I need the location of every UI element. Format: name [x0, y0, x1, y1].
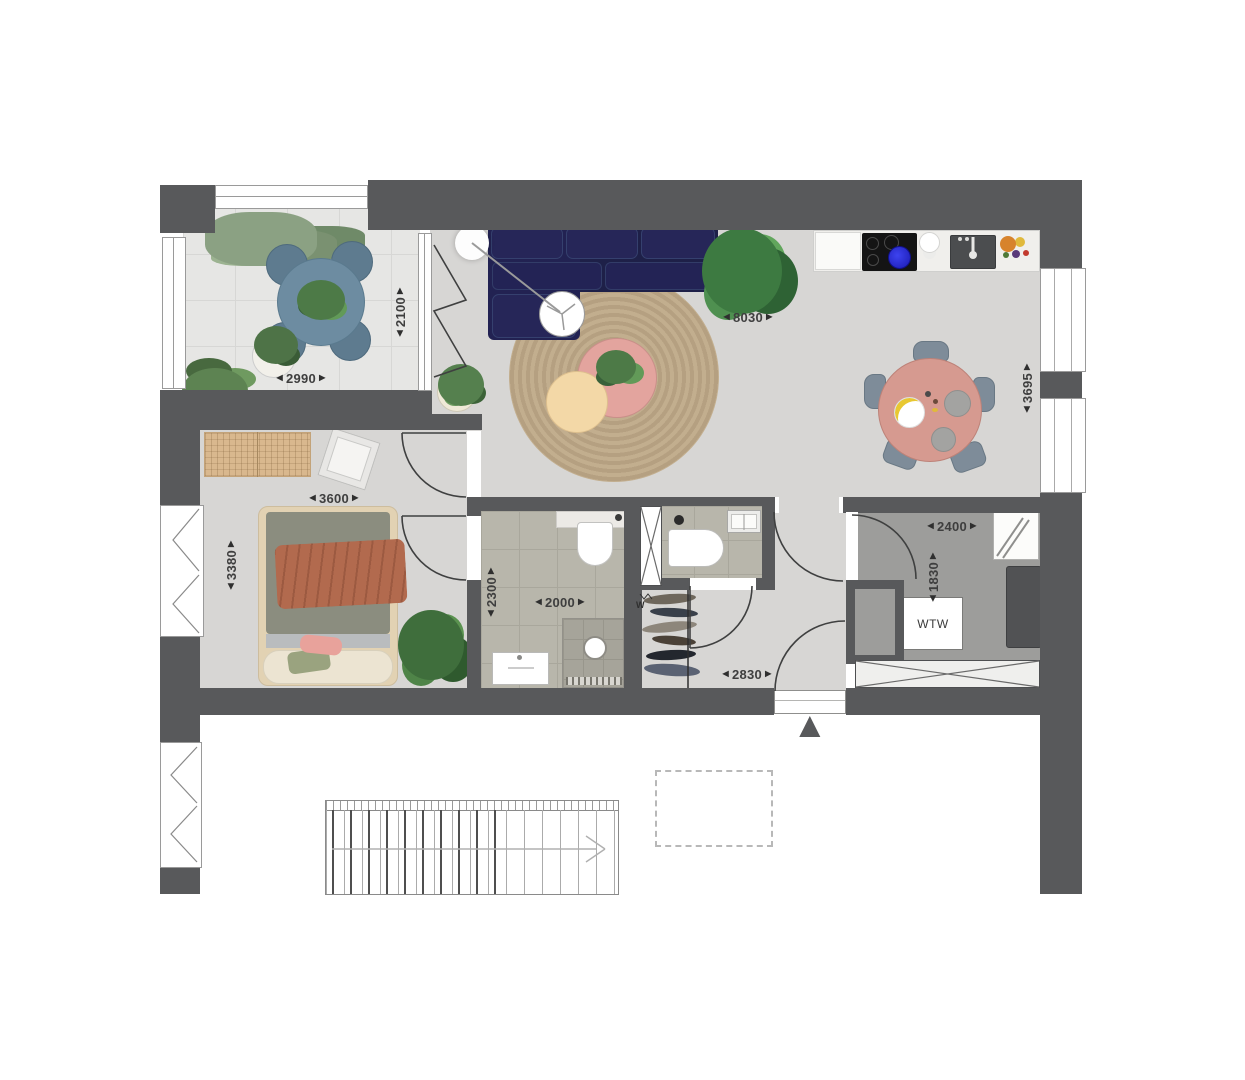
- dimension-value: 3380: [224, 550, 239, 580]
- dimension-balcony-width: ◀ 2990 ▶: [266, 371, 336, 385]
- tall-cabinet: [1006, 566, 1042, 648]
- serving-bowl: [894, 397, 925, 428]
- dimension-value: 2000: [545, 595, 575, 610]
- dimension-value: 2830: [732, 667, 762, 682]
- bedroom-door-opening: [467, 431, 481, 497]
- cooking-pot: [888, 246, 911, 269]
- dim-arrow-left-icon: ◀: [393, 330, 407, 336]
- wall-south-left: [160, 688, 774, 715]
- tech-door-opening: [846, 512, 858, 580]
- dimension-tech-width: ◀ 2400 ▶: [917, 519, 987, 533]
- shower-drain: [583, 636, 607, 660]
- sofa-seat-cushion: [492, 262, 602, 290]
- dim-arrow-left-icon: ◀: [276, 371, 282, 385]
- dimension-bathroom-depth: ◀ 2300 ▶: [484, 557, 498, 627]
- coffee-table-plant: [596, 350, 636, 384]
- bathroom-door-opening: [467, 516, 481, 580]
- dim-arrow-left-icon: ◀: [1020, 406, 1034, 412]
- dim-arrow-right-icon: ▶: [484, 567, 498, 573]
- table-decor: [932, 408, 938, 412]
- dim-arrow-left-icon: ◀: [224, 583, 238, 589]
- sofa-cushion: [491, 227, 563, 259]
- floor-lamp-shade: [455, 226, 489, 260]
- toilet-bowl: [577, 522, 613, 566]
- dimension-value: 1830: [926, 562, 941, 592]
- dimension-value: 2300: [484, 577, 499, 607]
- dim-arrow-right-icon: ▶: [352, 491, 358, 505]
- wall-right-upper: [1040, 180, 1082, 270]
- wall-right-pier: [1040, 372, 1082, 398]
- cooktop-burner: [866, 237, 879, 250]
- balcony-table-plant: [297, 280, 345, 320]
- entrance-arrow-icon: ▲: [792, 707, 828, 743]
- balcony-railing-top: [215, 185, 368, 209]
- shaft-bathroom: [640, 506, 662, 586]
- wall-balcony-nw: [160, 185, 215, 233]
- towel-rail: [566, 677, 622, 685]
- wall-bathroom-north: [480, 497, 642, 511]
- wc-bowl: [668, 529, 724, 567]
- dimension-value: 2990: [286, 371, 316, 386]
- dim-arrow-left-icon: ◀: [722, 667, 728, 681]
- dim-arrow-right-icon: ▶: [766, 310, 772, 324]
- dresser-divider: [257, 432, 258, 477]
- wall-bedroom-east-b: [467, 580, 481, 690]
- tech-pocket-niche: [855, 589, 895, 655]
- dimension-bathroom-width: ◀ 2000 ▶: [525, 595, 595, 609]
- coat-rack-items: [642, 588, 702, 688]
- wall-south-right: [846, 688, 1082, 715]
- dimension-value: 3600: [319, 491, 349, 506]
- fruit-bowl: [1000, 236, 1016, 252]
- dim-arrow-right-icon: ▶: [319, 371, 325, 385]
- dim-arrow-left-icon: ◀: [927, 519, 933, 533]
- dim-arrow-left-icon: ◀: [484, 610, 498, 616]
- washer-unit: [993, 512, 1039, 560]
- balcony-pot-plant: [254, 326, 298, 364]
- dimension-hall-width: ◀ 2830 ▶: [712, 667, 782, 681]
- bedroom-window: [160, 505, 204, 637]
- meter-label: W: [636, 600, 645, 610]
- floor-plan: WTW W ▲: [0, 0, 1245, 1080]
- dim-arrow-right-icon: ▶: [224, 540, 238, 546]
- bed-blanket: [274, 539, 407, 610]
- wall-toilet-south-b: [756, 578, 775, 590]
- paper-roll: [919, 232, 940, 253]
- table-decor: [933, 399, 938, 404]
- living-room-plant: [702, 228, 782, 314]
- living-window-2: [1040, 398, 1086, 493]
- sofa-cushion: [566, 227, 638, 259]
- dimension-living-depth: ◀ 3695 ▶: [1020, 353, 1034, 423]
- balcony-glass-door: [418, 233, 432, 391]
- wc-cistern: [674, 515, 684, 525]
- dimension-value: 8030: [733, 310, 763, 325]
- dim-arrow-right-icon: ▶: [926, 552, 940, 558]
- dim-arrow-right-icon: ▶: [1020, 363, 1034, 369]
- dinner-plate: [931, 427, 956, 452]
- floor-lamp-base: [539, 291, 585, 337]
- sofa-seat-cushion: [605, 262, 715, 290]
- dim-arrow-left-icon: ◀: [309, 491, 315, 505]
- balcony-railing-left: [162, 237, 186, 389]
- balcony-door-plant: [438, 364, 484, 406]
- wall-tech-north: [843, 497, 1040, 513]
- side-table: [546, 371, 608, 433]
- kitchen-cabinet: [815, 232, 861, 270]
- wall-toilet-north: [642, 497, 775, 506]
- wall-bedroom-east-a: [467, 497, 481, 517]
- toilet-door-opening: [690, 578, 756, 590]
- staircase: [325, 800, 619, 895]
- dim-arrow-left-icon: ◀: [723, 310, 729, 324]
- dim-arrow-left-icon: ◀: [926, 595, 940, 601]
- dimension-value: 2400: [937, 519, 967, 534]
- dim-arrow-right-icon: ▶: [578, 595, 584, 609]
- dimension-balcony-depth: ◀ 2100 ▶: [393, 277, 407, 347]
- dimension-bedroom-depth: ◀ 3380 ▶: [224, 530, 238, 600]
- hand-basin: [727, 510, 761, 533]
- dimension-tech-depth: ◀ 1830 ▶: [926, 542, 940, 612]
- lower-level-window: [160, 742, 202, 868]
- bedroom-plant: [398, 610, 464, 680]
- dimension-living-width: ◀ 8030 ▶: [713, 310, 783, 324]
- dinner-plate: [944, 390, 971, 417]
- wall-top: [368, 180, 1082, 230]
- dim-arrow-right-icon: ▶: [970, 519, 976, 533]
- dimension-value: 2100: [393, 297, 408, 327]
- dimension-bedroom-width: ◀ 3600 ▶: [299, 491, 369, 505]
- dim-arrow-right-icon: ▶: [393, 287, 407, 293]
- kitchen-sink: [950, 235, 996, 269]
- wall-bedroom-north: [198, 414, 482, 430]
- void-dashed-outline: [655, 770, 773, 847]
- flush-button: [615, 514, 622, 521]
- cooktop-burner: [867, 254, 879, 266]
- stair-treads-lower: [332, 810, 510, 894]
- table-decor: [925, 391, 931, 397]
- basin-faucet: [517, 655, 522, 660]
- shaft-tech: [855, 660, 1040, 688]
- wall-left-lower: [160, 866, 200, 894]
- living-window-1: [1040, 268, 1086, 372]
- wtw-label: WTW: [917, 617, 948, 631]
- hall-door-opening: [775, 497, 843, 513]
- dimension-value: 3695: [1020, 373, 1035, 403]
- dim-arrow-right-icon: ▶: [765, 667, 771, 681]
- dim-arrow-left-icon: ◀: [535, 595, 541, 609]
